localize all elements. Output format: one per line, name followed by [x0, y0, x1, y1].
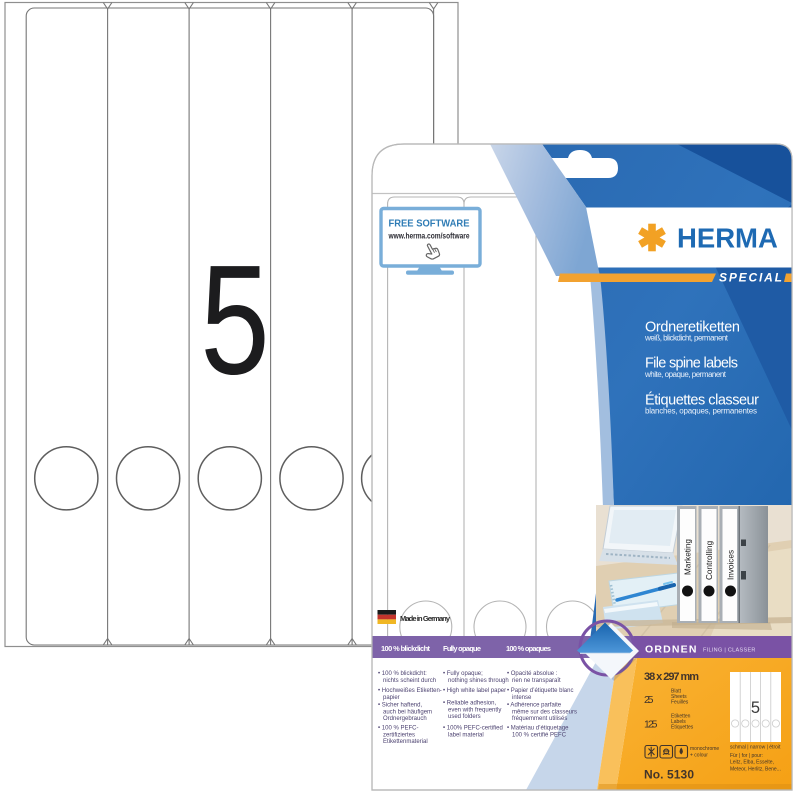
svg-text:100 % blickdicht: 100 % blickdicht	[381, 644, 431, 653]
svg-text:5: 5	[200, 232, 269, 406]
svg-text:25: 25	[644, 694, 654, 706]
svg-text:FILING | CLASSER: FILING | CLASSER	[703, 648, 756, 654]
svg-text:125: 125	[644, 719, 658, 731]
svg-text:38 x 297 mm: 38 x 297 mm	[644, 671, 699, 683]
svg-text:Controlling: Controlling	[705, 540, 714, 580]
svg-text:5: 5	[751, 699, 760, 717]
svg-text:100 % opaques: 100 % opaques	[506, 644, 551, 653]
svg-text:ORDNEN: ORDNEN	[645, 644, 697, 656]
svg-text:Made in Germany: Made in Germany	[400, 614, 451, 623]
svg-text:weiß, blickdicht, permanent: weiß, blickdicht, permanent	[644, 334, 729, 343]
svg-text:blanches, opaques, permanentes: blanches, opaques, permanentes	[645, 407, 757, 416]
svg-text:No. 5130: No. 5130	[644, 768, 694, 782]
svg-text:schmal | narrow | étroit: schmal | narrow | étroit	[730, 745, 781, 751]
svg-text:FREE SOFTWARE: FREE SOFTWARE	[389, 219, 470, 230]
svg-text:Fully opaque: Fully opaque	[443, 644, 481, 653]
svg-text:Marketing: Marketing	[684, 539, 693, 575]
svg-text:www.herma.com/software: www.herma.com/software	[388, 232, 470, 241]
svg-text:SPECIAL: SPECIAL	[719, 271, 782, 285]
svg-text:white, opaque, permanent: white, opaque, permanent	[644, 370, 727, 379]
svg-text:Invoices: Invoices	[727, 550, 736, 580]
svg-text:HERMA: HERMA	[677, 223, 778, 254]
